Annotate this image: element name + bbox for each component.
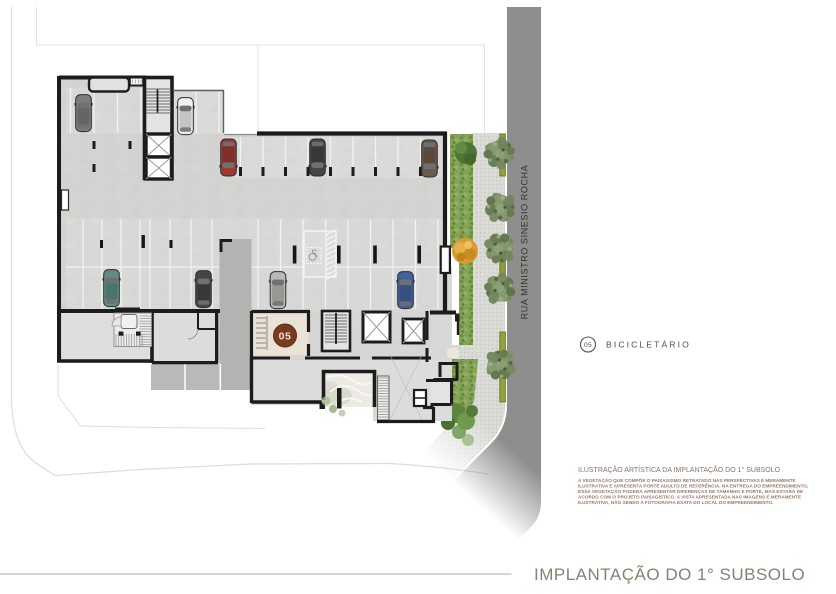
svg-text:RUA MINISTRO SINESIO ROCHA: RUA MINISTRO SINESIO ROCHA <box>520 165 530 320</box>
svg-text:IMPLANTAÇÃO DO 1° SUBSOLO: IMPLANTAÇÃO DO 1° SUBSOLO <box>534 565 805 584</box>
svg-text:ILUSTRATIVA, NÃO SENDO A FOTOG: ILUSTRATIVA, NÃO SENDO A FOTOGRAFIA EXAT… <box>578 499 773 505</box>
svg-text:ESSA VEGETAÇÃO PODERÁ APRESENT: ESSA VEGETAÇÃO PODERÁ APRESENTAR DIFEREN… <box>578 488 803 494</box>
svg-text:ILUSTRATIVA E APRESENTA PORTE: ILUSTRATIVA E APRESENTA PORTE ADULTO DE … <box>578 482 808 489</box>
svg-text:A VEGETAÇÃO QUE COMPÕE O PAISA: A VEGETAÇÃO QUE COMPÕE O PAISAGISMO RETR… <box>578 476 796 483</box>
svg-text:ACORDO COM O PROJETO PAISAGÍST: ACORDO COM O PROJETO PAISAGÍSTICO. A VIS… <box>578 493 801 500</box>
svg-text:ILUSTRAÇÃO ARTÍSTICA DA IMPLAN: ILUSTRAÇÃO ARTÍSTICA DA IMPLANTAÇÃO DO 1… <box>578 465 781 474</box>
svg-text:05: 05 <box>584 342 592 349</box>
svg-text:BICICLETÁRIO: BICICLETÁRIO <box>606 340 691 350</box>
svg-text:05: 05 <box>279 331 292 343</box>
